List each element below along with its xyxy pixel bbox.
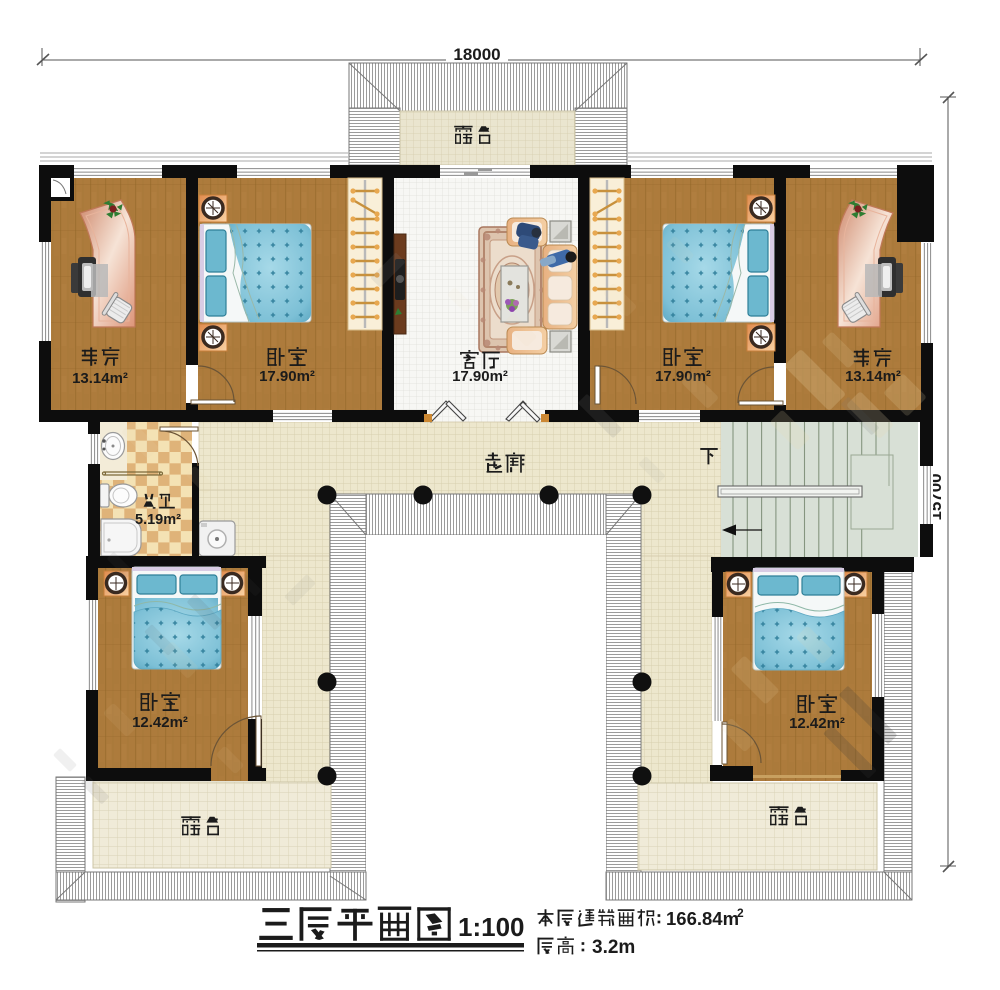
svg-text:17.90m²: 17.90m² [452,368,508,385]
svg-text:17.90m²: 17.90m² [259,368,315,385]
svg-text:5.19m²: 5.19m² [135,512,181,528]
svg-text:18000: 18000 [453,45,500,64]
svg-text:1:100: 1:100 [458,912,525,942]
svg-text:3.2m: 3.2m [592,937,635,958]
svg-text:12.42m²: 12.42m² [789,715,845,732]
svg-text:166.84m: 166.84m [666,908,739,929]
svg-text:13.14m²: 13.14m² [72,370,128,387]
svg-text:2: 2 [737,906,744,920]
svg-text:13.14m²: 13.14m² [845,368,901,385]
svg-text:12.42m²: 12.42m² [132,714,188,731]
